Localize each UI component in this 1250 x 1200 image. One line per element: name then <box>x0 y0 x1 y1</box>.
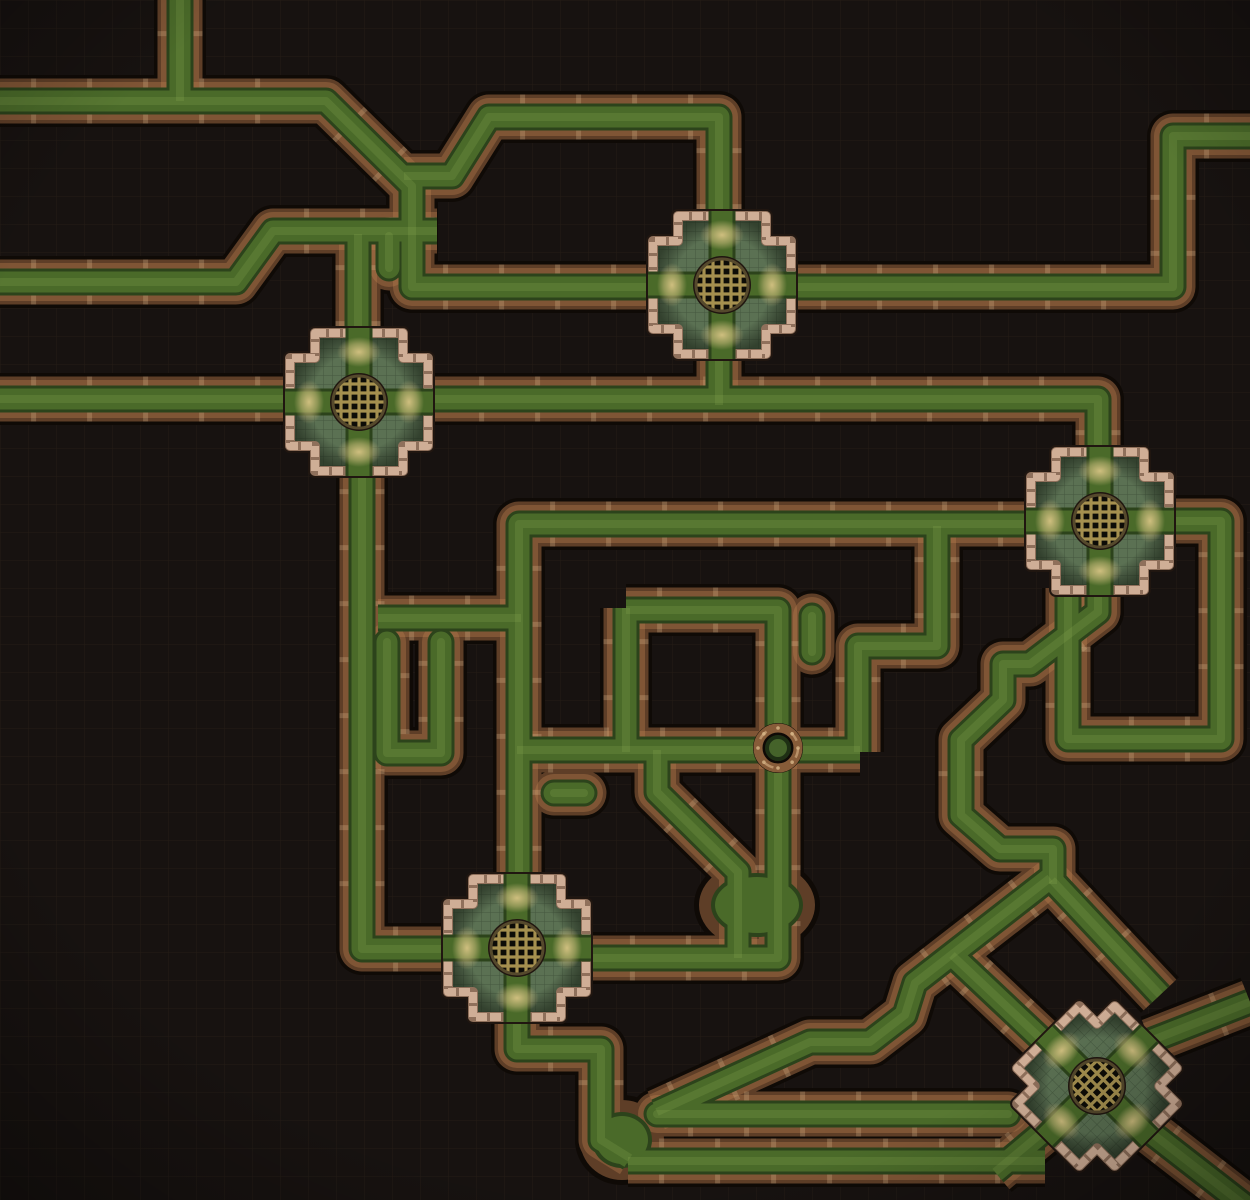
valve-bolt <box>762 760 766 764</box>
sludge-fan <box>1078 556 1122 586</box>
sewer-map-svg <box>0 0 1250 1200</box>
valve-fitting <box>753 723 803 773</box>
sludge-fan <box>700 220 744 250</box>
valve-bolt <box>756 746 760 750</box>
sludge-fan <box>337 337 381 367</box>
sludge-fan <box>495 983 539 1013</box>
sludge-fan <box>552 926 582 970</box>
sludge-fan <box>394 380 424 424</box>
sludge-fan <box>337 437 381 467</box>
valve-bolt <box>790 760 794 764</box>
sludge-fan <box>700 320 744 350</box>
sludge-fan <box>495 883 539 913</box>
sludge-fan <box>452 926 482 970</box>
valve-bolt <box>762 732 766 736</box>
valve-bolt <box>776 766 780 770</box>
valve-center <box>767 737 789 759</box>
sludge-fan <box>1035 499 1065 543</box>
sludge-fan <box>1078 456 1122 486</box>
confluence-pool <box>715 877 799 933</box>
valve-bolt <box>776 726 780 730</box>
valve-bolt <box>796 746 800 750</box>
sludge-fan <box>1135 499 1165 543</box>
sludge-fan <box>657 263 687 307</box>
valve-bolt <box>790 732 794 736</box>
sludge-fan <box>757 263 787 307</box>
sludge-fan <box>294 380 324 424</box>
map-canvas <box>0 0 1250 1200</box>
